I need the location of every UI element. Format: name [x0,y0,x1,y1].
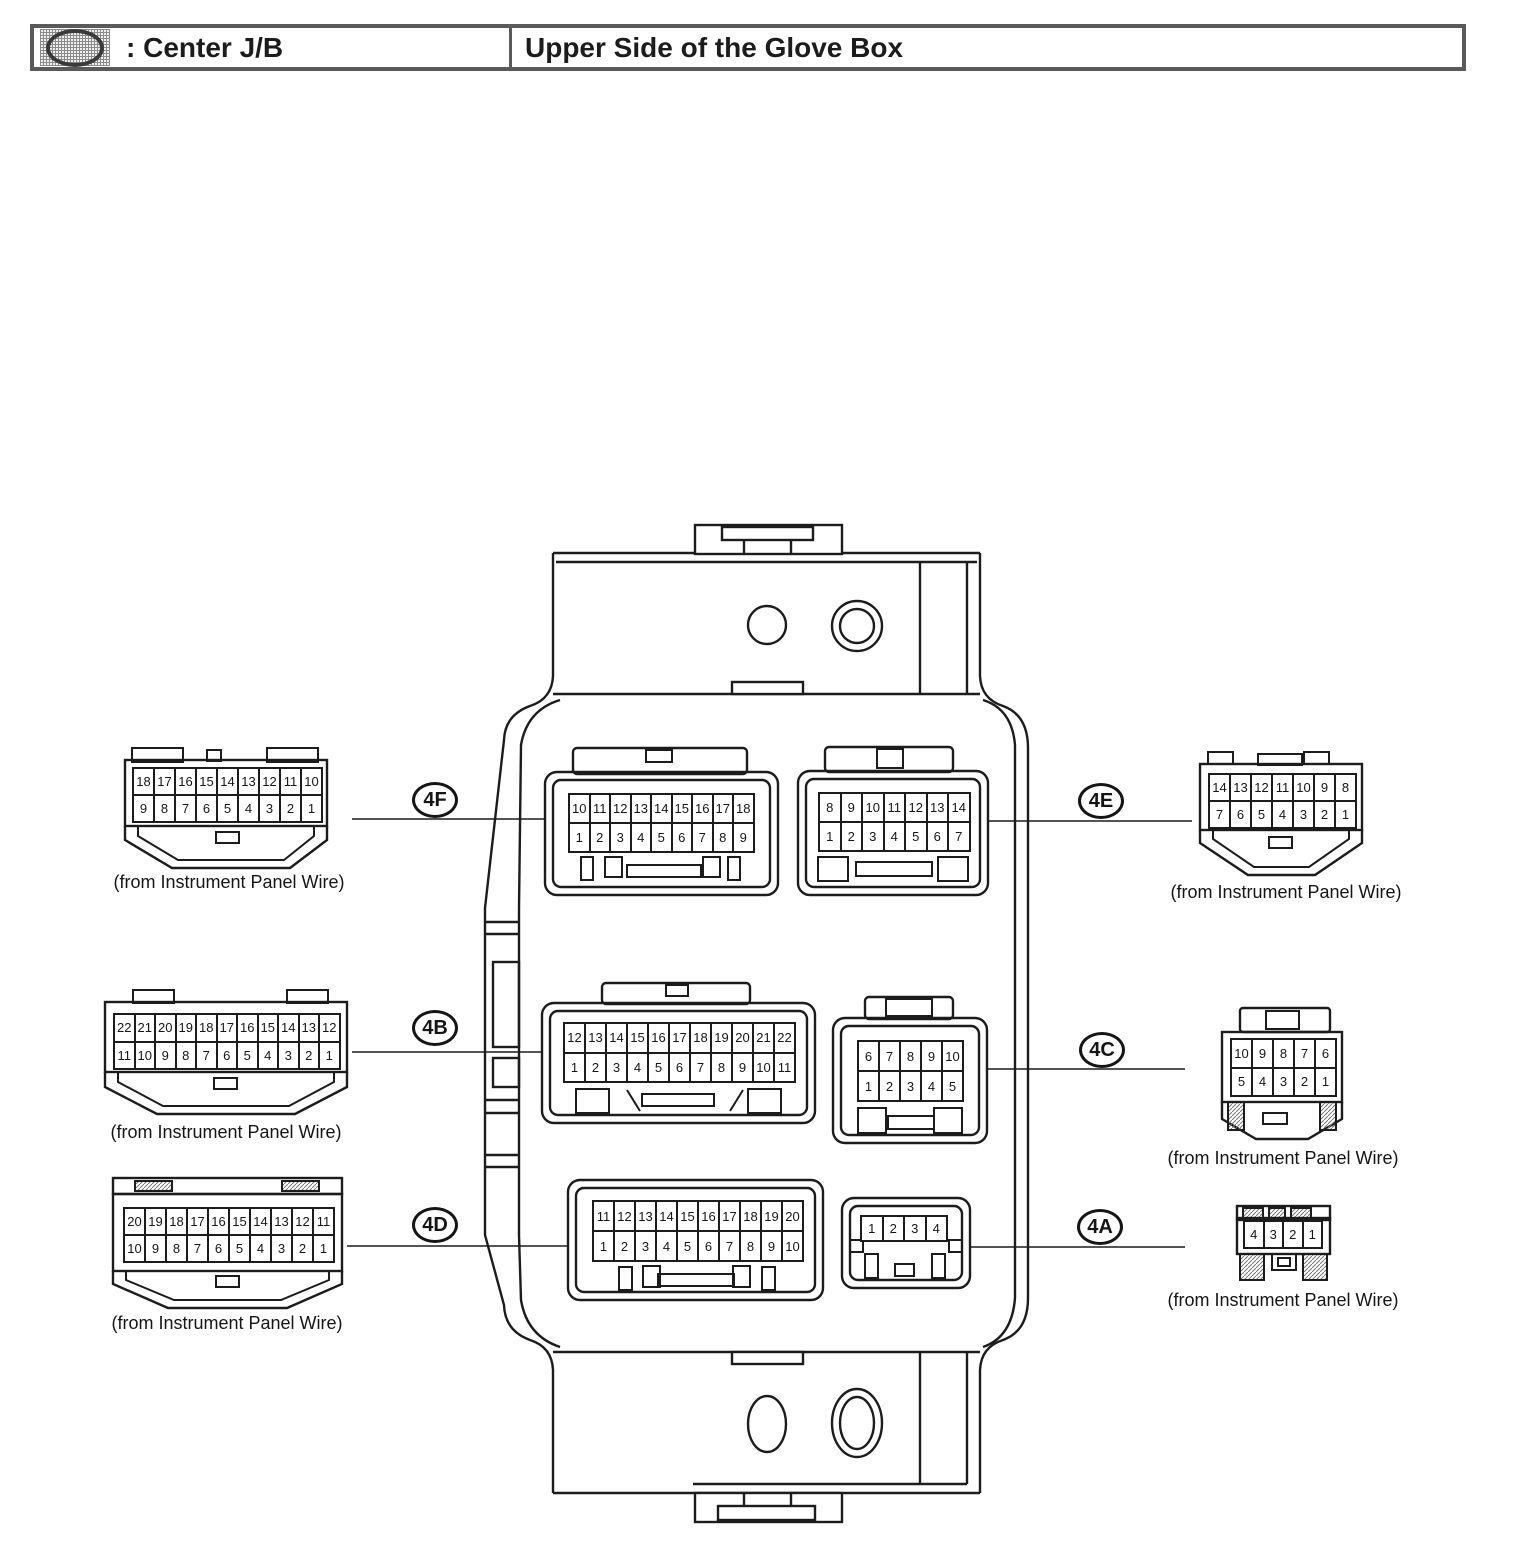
pin-16: 16 [236,1013,259,1043]
pin-6: 6 [926,821,950,852]
pin-16: 16 [174,767,197,796]
pin-12: 12 [613,1200,636,1232]
pin-16: 16 [647,1022,670,1054]
pin-row: 7654321 [1208,800,1357,829]
pin-6: 6 [671,822,694,853]
pin-20: 20 [781,1200,804,1232]
harness-left-top-pin-grid: 181716151413121110 987654321 [132,767,323,823]
pin-7: 7 [878,1040,901,1072]
pin-6: 6 [216,1041,239,1071]
pin-4: 4 [655,1230,678,1262]
pin-21: 21 [752,1022,775,1054]
pin-5: 5 [228,1234,251,1263]
pin-2: 2 [584,1052,607,1084]
pin-1: 1 [857,1070,880,1102]
callout-4f: 4F [412,782,458,818]
pin-17: 17 [153,767,176,796]
pin-8: 8 [712,822,735,853]
pin-22: 22 [113,1013,136,1043]
pin-20: 20 [123,1207,146,1236]
pin-4: 4 [626,1052,649,1084]
pin-9: 9 [1251,1038,1274,1069]
pin-12: 12 [291,1207,314,1236]
pin-10: 10 [941,1040,964,1072]
header-location-cell: Upper Side of the Glove Box [512,28,1462,67]
pin-18: 18 [689,1022,712,1054]
pin-18: 18 [165,1207,188,1236]
pin-13: 13 [1229,773,1252,802]
caption-right-top: (from Instrument Panel Wire) [1151,882,1421,903]
pin-row: 1213141516171819202122 [563,1022,796,1054]
connector-4e-pin-grid: 891011121314 1234567 [818,792,971,852]
pin-3: 3 [899,1070,922,1102]
oval-glyph-icon [46,29,104,67]
pin-8: 8 [175,1041,198,1071]
pin-row: 2221201918171615141312 [113,1013,341,1043]
pin-7: 7 [689,1052,712,1084]
pin-3: 3 [634,1230,657,1262]
pin-18: 18 [132,767,155,796]
pin-11: 11 [1271,773,1294,802]
pin-row: 10987654321 [123,1234,335,1263]
pin-2: 2 [1313,800,1336,829]
pin-2: 2 [291,1234,314,1263]
pin-16: 16 [207,1207,230,1236]
pin-2: 2 [613,1230,636,1262]
caption-left-bottom: (from Instrument Panel Wire) [92,1313,362,1334]
pin-6: 6 [195,794,218,823]
pin-2: 2 [878,1070,901,1102]
pin-6: 6 [668,1052,691,1084]
pin-5: 5 [1250,800,1273,829]
pin-4: 4 [237,794,260,823]
pin-17: 17 [718,1200,741,1232]
pin-7: 7 [186,1234,209,1263]
pin-10: 10 [861,792,885,823]
pin-8: 8 [899,1040,922,1072]
pin-12: 12 [563,1022,586,1054]
pin-2: 2 [840,821,864,852]
pin-row: 1234 [860,1215,948,1242]
caption-right-bottom: (from Instrument Panel Wire) [1148,1290,1418,1311]
pin-7: 7 [195,1041,218,1071]
pin-7: 7 [1208,800,1231,829]
pin-row: 678910 [857,1040,964,1072]
pin-13: 13 [237,767,260,796]
pin-17: 17 [186,1207,209,1236]
pin-11: 11 [113,1041,136,1071]
pin-11: 11 [589,793,612,824]
pin-7: 7 [691,822,714,853]
pin-12: 12 [1250,773,1273,802]
pin-3: 3 [270,1234,293,1263]
pin-18: 18 [739,1200,762,1232]
pin-row: 123456789 [568,822,755,853]
callout-4d: 4D [412,1207,458,1243]
pin-5: 5 [904,821,928,852]
pin-15: 15 [195,767,218,796]
pin-row: 109876 [1230,1038,1337,1069]
pin-1: 1 [318,1041,341,1071]
pin-12: 12 [609,793,632,824]
connector-4f-pin-grid: 101112131415161718 123456789 [568,793,755,853]
pin-14: 14 [277,1013,300,1043]
pin-3: 3 [258,794,281,823]
pin-10: 10 [752,1052,775,1084]
pin-8: 8 [1272,1038,1295,1069]
pin-1: 1 [1334,800,1357,829]
pin-20: 20 [154,1013,177,1043]
pin-11: 11 [592,1200,615,1232]
pin-14: 14 [249,1207,272,1236]
pin-15: 15 [676,1200,699,1232]
pin-17: 17 [668,1022,691,1054]
pin-10: 10 [1292,773,1315,802]
harness-right-middle-pin-grid: 109876 54321 [1230,1038,1337,1097]
harness-right-bottom-pin-grid: 4321 [1243,1220,1323,1249]
pin-13: 13 [926,792,950,823]
pin-4: 4 [257,1041,280,1071]
pin-18: 18 [195,1013,218,1043]
pin-4: 4 [883,821,907,852]
pin-8: 8 [818,792,842,823]
pin-9: 9 [144,1234,167,1263]
pin-8: 8 [710,1052,733,1084]
pin-14: 14 [605,1022,628,1054]
pin-19: 19 [144,1207,167,1236]
pin-19: 19 [175,1013,198,1043]
pin-3: 3 [1272,1067,1295,1098]
pin-row: 20191817161514131211 [123,1207,335,1236]
header-bar: : Center J/B Upper Side of the Glove Box [30,24,1466,71]
pin-11: 11 [883,792,907,823]
pin-8: 8 [739,1230,762,1262]
pin-row: 12345 [857,1070,964,1102]
pin-2: 2 [298,1041,321,1071]
pin-6: 6 [697,1230,720,1262]
pin-19: 19 [760,1200,783,1232]
pin-19: 19 [710,1022,733,1054]
pin-3: 3 [861,821,885,852]
harness-left-bottom-pin-grid: 20191817161514131211 10987654321 [123,1207,335,1263]
caption-left-middle: (from Instrument Panel Wire) [91,1122,361,1143]
pin-row: 1234567891011 [563,1052,796,1084]
pin-10: 10 [300,767,323,796]
pin-9: 9 [731,1052,754,1084]
pin-9: 9 [1313,773,1336,802]
pin-4: 4 [925,1215,949,1242]
pin-4: 4 [920,1070,943,1102]
pin-12: 12 [904,792,928,823]
pin-15: 15 [257,1013,280,1043]
pin-14: 14 [947,792,971,823]
location-title: Upper Side of the Glove Box [525,32,903,64]
pin-row: 4321 [1243,1220,1323,1249]
pin-5: 5 [647,1052,670,1084]
pin-row: 891011121314 [818,792,971,823]
pin-8: 8 [153,794,176,823]
pin-18: 18 [732,793,755,824]
pin-row: 12345678910 [592,1230,804,1262]
pin-15: 15 [671,793,694,824]
pin-14: 14 [655,1200,678,1232]
pin-5: 5 [941,1070,964,1102]
mount-hole-round [748,606,786,644]
pin-7: 7 [174,794,197,823]
mount-slot-ring-inner [840,1397,874,1449]
pin-10: 10 [123,1234,146,1263]
pin-row: 11121314151617181920 [592,1200,804,1232]
pin-21: 21 [134,1013,157,1043]
pin-row: 1234567 [818,821,971,852]
pin-1: 1 [592,1230,615,1262]
page: : Center J/B Upper Side of the Glove Box… [0,0,1520,1568]
pin-1: 1 [1302,1220,1324,1249]
pin-row: 181716151413121110 [132,767,323,796]
pin-3: 3 [277,1041,300,1071]
pin-6: 6 [207,1234,230,1263]
harness-left-middle-pin-grid: 2221201918171615141312 1110987654321 [113,1013,341,1070]
pin-15: 15 [228,1207,251,1236]
caption-left-top: (from Instrument Panel Wire) [94,872,364,893]
pin-1: 1 [563,1052,586,1084]
pin-14: 14 [216,767,239,796]
header-legend-cell: : Center J/B [34,28,512,67]
pin-5: 5 [216,794,239,823]
pin-1: 1 [860,1215,884,1242]
caption-right-middle: (from Instrument Panel Wire) [1148,1148,1418,1169]
pin-10: 10 [568,793,591,824]
pin-5: 5 [1230,1067,1253,1098]
pin-2: 2 [1282,1220,1304,1249]
pin-3: 3 [1263,1220,1285,1249]
mount-slot-oval [748,1396,786,1452]
pin-5: 5 [236,1041,259,1071]
pin-6: 6 [1229,800,1252,829]
callout-4a: 4A [1077,1209,1123,1245]
pin-1: 1 [312,1234,335,1263]
pin-3: 3 [1292,800,1315,829]
pin-1: 1 [300,794,323,823]
pin-9: 9 [920,1040,943,1072]
pin-1: 1 [568,822,591,853]
pin-4: 4 [249,1234,272,1263]
junction-block-icon [40,29,110,66]
pin-14: 14 [1208,773,1231,802]
pin-13: 13 [630,793,653,824]
pin-3: 3 [609,822,632,853]
pin-9: 9 [132,794,155,823]
pin-22: 22 [773,1022,796,1054]
harness-right-top-pin-grid: 141312111098 7654321 [1208,773,1357,829]
pin-13: 13 [298,1013,321,1043]
pin-9: 9 [154,1041,177,1071]
pin-4: 4 [1251,1067,1274,1098]
pin-row: 141312111098 [1208,773,1357,802]
pin-3: 3 [605,1052,628,1084]
mount-hole-ring-inner [840,609,874,643]
connector-4a-pin-grid: 1234 [860,1215,948,1242]
pin-5: 5 [650,822,673,853]
pin-2: 2 [882,1215,906,1242]
pin-4: 4 [1243,1220,1265,1249]
pin-17: 17 [712,793,735,824]
pin-10: 10 [134,1041,157,1071]
pin-20: 20 [731,1022,754,1054]
legend-label: : Center J/B [126,32,283,64]
pin-13: 13 [270,1207,293,1236]
pin-8: 8 [165,1234,188,1263]
pin-2: 2 [589,822,612,853]
pin-1: 1 [1314,1067,1337,1098]
callout-4c: 4C [1079,1032,1125,1068]
pin-9: 9 [760,1230,783,1262]
pin-row: 1110987654321 [113,1041,341,1071]
connector-4d-pin-grid: 11121314151617181920 12345678910 [592,1200,804,1262]
pin-11: 11 [279,767,302,796]
pin-15: 15 [626,1022,649,1054]
pin-12: 12 [318,1013,341,1043]
pin-3: 3 [903,1215,927,1242]
pin-2: 2 [1293,1067,1316,1098]
connector-4a-body [842,1198,970,1288]
pin-2: 2 [279,794,302,823]
pin-11: 11 [773,1052,796,1084]
connector-4c-pin-grid: 678910 12345 [857,1040,964,1102]
pin-11: 11 [312,1207,335,1236]
pin-4: 4 [630,822,653,853]
pin-4: 4 [1271,800,1294,829]
callout-4b: 4B [412,1010,458,1046]
pin-14: 14 [650,793,673,824]
pin-7: 7 [1293,1038,1316,1069]
pin-8: 8 [1334,773,1357,802]
pin-10: 10 [781,1230,804,1262]
pin-17: 17 [216,1013,239,1043]
callout-4e: 4E [1078,783,1124,819]
pin-1: 1 [818,821,842,852]
pin-row: 987654321 [132,794,323,823]
pin-6: 6 [857,1040,880,1072]
pin-10: 10 [1230,1038,1253,1069]
pin-13: 13 [584,1022,607,1054]
pin-7: 7 [947,821,971,852]
connector-4b-pin-grid: 1213141516171819202122 1234567891011 [563,1022,796,1083]
pin-6: 6 [1314,1038,1337,1069]
pin-7: 7 [718,1230,741,1262]
pin-9: 9 [840,792,864,823]
pin-row: 54321 [1230,1067,1337,1098]
pin-9: 9 [732,822,755,853]
pin-16: 16 [691,793,714,824]
pin-13: 13 [634,1200,657,1232]
pin-5: 5 [676,1230,699,1262]
pin-row: 101112131415161718 [568,793,755,824]
pin-12: 12 [258,767,281,796]
pin-16: 16 [697,1200,720,1232]
